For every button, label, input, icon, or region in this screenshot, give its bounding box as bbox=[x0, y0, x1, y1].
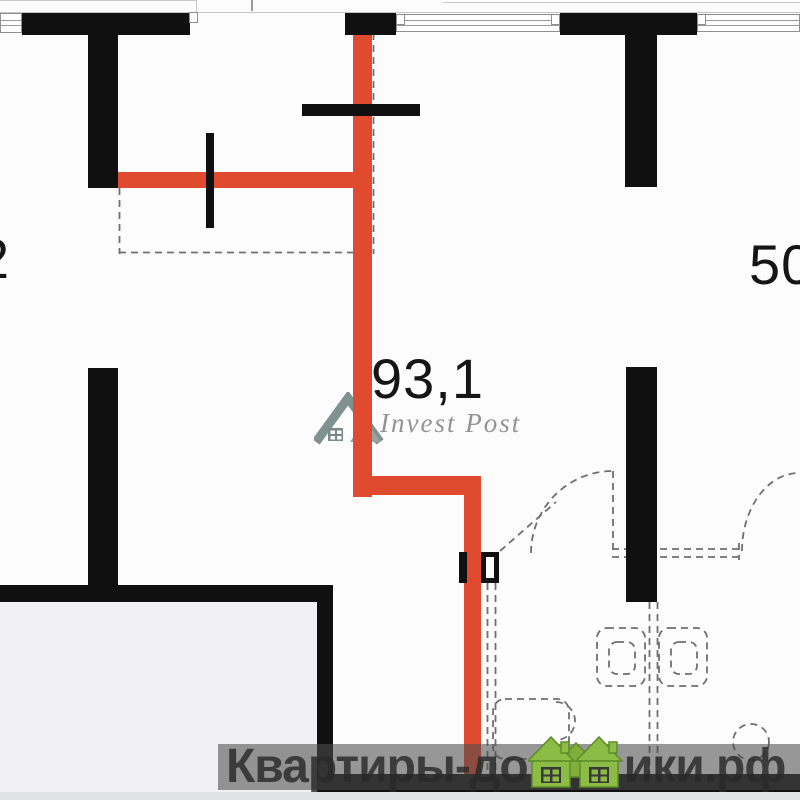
wall-segment bbox=[88, 368, 118, 585]
window-glass-line bbox=[698, 20, 799, 21]
furniture-chair-outline bbox=[609, 642, 635, 674]
furniture-chair-outline bbox=[597, 628, 645, 686]
furniture-chair-outline bbox=[659, 628, 707, 686]
window-end-cap bbox=[697, 14, 706, 25]
wall-segment bbox=[345, 13, 396, 35]
site-watermark-text-right: ики.рф bbox=[624, 744, 786, 790]
window-end-cap bbox=[396, 14, 405, 25]
window-end-cap bbox=[551, 14, 560, 25]
window-glass-line bbox=[1, 20, 21, 21]
highlight-line-vertical bbox=[353, 33, 372, 497]
wall-segment bbox=[560, 13, 697, 35]
highlight-line-horizontal bbox=[118, 172, 353, 188]
window-glass-line bbox=[698, 25, 799, 26]
room-area-label-left: 2 bbox=[0, 226, 10, 291]
panel-symbol-bar bbox=[459, 552, 467, 583]
panel-symbol-box bbox=[481, 552, 499, 583]
green-houses-logo-icon bbox=[528, 735, 624, 791]
wall-break-tick bbox=[302, 104, 420, 116]
window-symbol bbox=[396, 14, 560, 32]
room-area-label-main: 93,1 bbox=[371, 346, 484, 411]
window-symbol bbox=[697, 14, 800, 32]
window-end-cap bbox=[189, 12, 198, 23]
dashed-wall-line bbox=[500, 502, 556, 551]
floor-plan: Invest Post 2 50 93,1 Квартиры-до bbox=[0, 0, 800, 800]
window-glass-line bbox=[397, 20, 559, 21]
furniture-chair-outline bbox=[671, 642, 697, 674]
window-glass-line bbox=[397, 25, 559, 26]
window-symbol bbox=[0, 13, 22, 33]
highlight-line-vertical-lower bbox=[464, 476, 481, 776]
window-glass-line bbox=[1, 25, 21, 26]
wall-segment bbox=[626, 367, 657, 602]
site-watermark-text-left: Квартиры-до bbox=[226, 744, 528, 790]
door-swing-arc bbox=[531, 471, 613, 553]
wall-segment bbox=[0, 585, 332, 602]
wall-segment bbox=[625, 33, 657, 187]
highlight-line-jog bbox=[353, 476, 481, 495]
site-watermark-band: Квартиры-до ики.рф bbox=[218, 744, 800, 790]
door-swing-arc bbox=[742, 473, 799, 551]
wall-break-tick bbox=[206, 133, 214, 228]
invest-post-text: Invest Post bbox=[380, 408, 521, 439]
wall-segment bbox=[88, 33, 118, 188]
room-area-label-right: 50 bbox=[749, 232, 800, 297]
wall-segment bbox=[22, 13, 190, 35]
